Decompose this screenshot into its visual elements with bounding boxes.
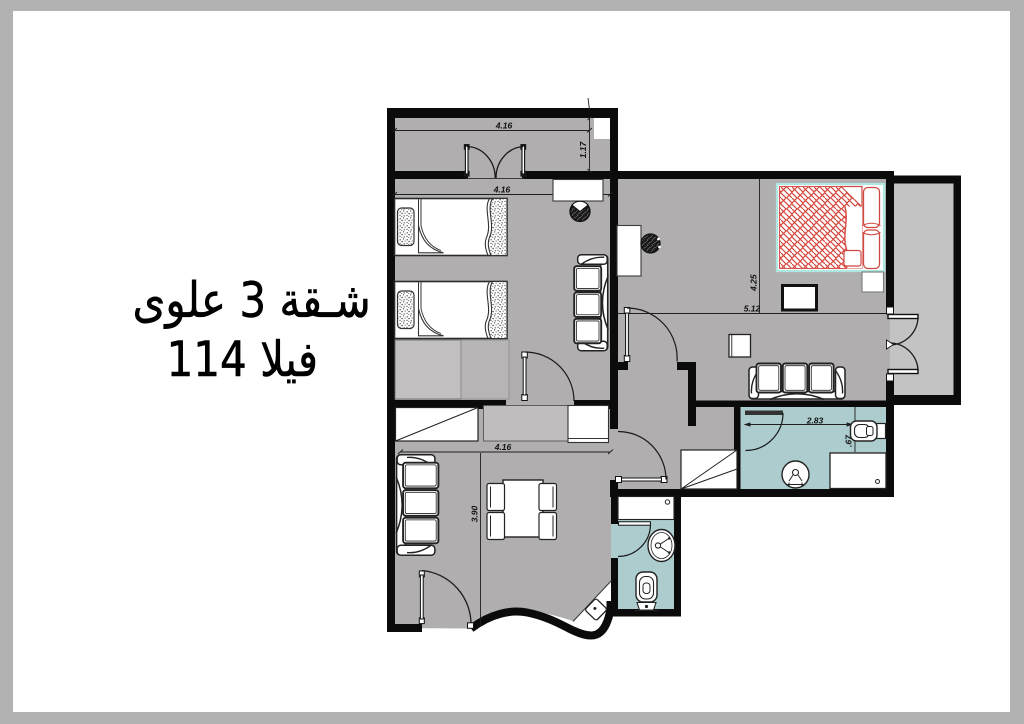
svg-text:3.90: 3.90 (470, 505, 480, 522)
svg-text:1.17: 1.17 (578, 140, 588, 158)
svg-text:4.16: 4.16 (494, 442, 512, 452)
svg-text:5.12: 5.12 (744, 304, 761, 314)
svg-text:4.25: 4.25 (749, 274, 759, 292)
svg-text:2.83: 2.83 (806, 416, 824, 426)
svg-text:4.16: 4.16 (495, 121, 513, 131)
svg-text:4.16: 4.16 (493, 185, 511, 195)
